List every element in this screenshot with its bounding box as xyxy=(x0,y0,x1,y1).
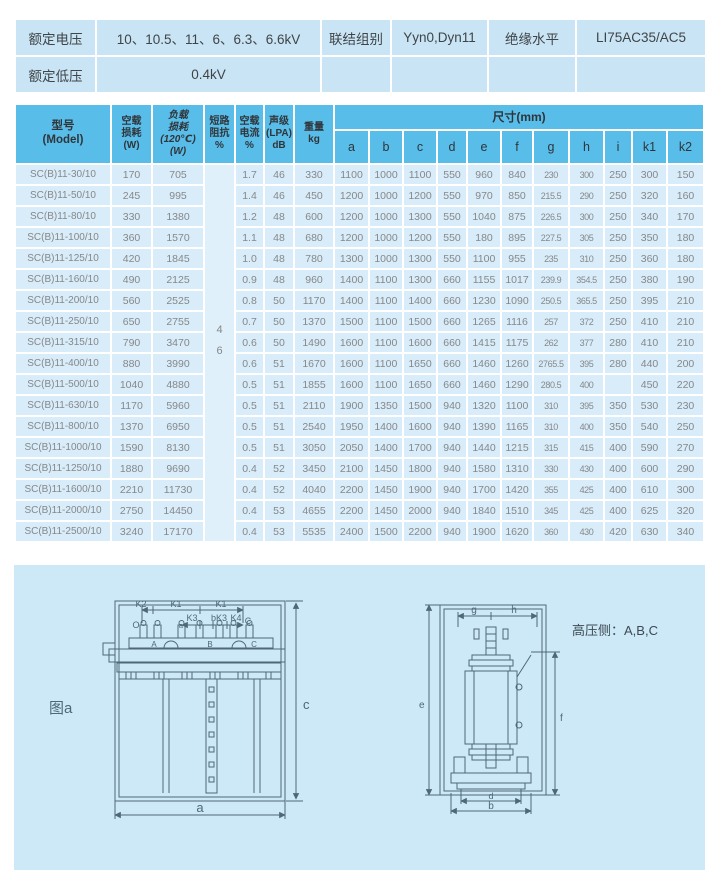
value-cell: 190 xyxy=(668,270,703,289)
value-cell: 400 xyxy=(605,501,631,520)
value-cell: 880 xyxy=(112,354,151,373)
value-cell: 790 xyxy=(112,333,151,352)
value-cell: 780 xyxy=(295,249,333,268)
value-cell: 1400 xyxy=(335,270,368,289)
ratings-bar: 额定电压 10、10.5、11、6、6.3、6.6kV 联结组别 Yyn0,Dy… xyxy=(14,18,707,94)
model-cell: SC(B)11-630/10 xyxy=(16,396,110,415)
value-cell: 51 xyxy=(265,375,293,394)
value-cell: 2200 xyxy=(404,522,436,541)
value-cell: 1650 xyxy=(404,354,436,373)
model-cell: SC(B)11-200/10 xyxy=(16,291,110,310)
empty-cell xyxy=(391,56,488,93)
value-cell: 415 xyxy=(570,438,603,457)
value-cell: 1100 xyxy=(370,270,402,289)
value-cell: 52 xyxy=(265,459,293,478)
value-cell: 290 xyxy=(668,459,703,478)
value-cell: 410 xyxy=(633,333,666,352)
value-cell: 280 xyxy=(605,333,631,352)
value-cell: 895 xyxy=(502,228,532,247)
value-cell: 48 xyxy=(265,207,293,226)
dim-label-f: f xyxy=(560,713,563,724)
value-cell: 350 xyxy=(633,228,666,247)
value-cell: 14450 xyxy=(153,501,203,520)
value-cell: 1600 xyxy=(335,375,368,394)
value-cell: 257 xyxy=(534,312,568,331)
value-cell: 850 xyxy=(502,186,532,205)
table-row: SC(B)11-160/1049021250.94896014001100130… xyxy=(16,270,703,289)
value-cell: 262 xyxy=(534,333,568,352)
value-cell: 227.5 xyxy=(534,228,568,247)
value-cell: 590 xyxy=(633,438,666,457)
value-cell: 1600 xyxy=(404,333,436,352)
value-cell: 1040 xyxy=(468,207,500,226)
value-cell: 250 xyxy=(668,417,703,436)
side-view-drawing: g h xyxy=(419,605,658,814)
value-cell: 1320 xyxy=(468,396,500,415)
empty-cell xyxy=(488,56,576,93)
value-cell: 355 xyxy=(534,480,568,499)
value-cell: 630 xyxy=(633,522,666,541)
value-cell: 2750 xyxy=(112,501,151,520)
value-cell: 3470 xyxy=(153,333,203,352)
value-cell: 250 xyxy=(605,207,631,226)
value-cell: 1165 xyxy=(502,417,532,436)
value-cell: 400 xyxy=(570,375,603,394)
ratings-row-2: 额定低压 0.4kV xyxy=(15,56,706,93)
value-cell: 1260 xyxy=(502,354,532,373)
value-cell: 11730 xyxy=(153,480,203,499)
terminal-label-a: A xyxy=(151,640,157,649)
value-cell: 51 xyxy=(265,438,293,457)
spec-table-body: SC(B)11-30/101707054 61.7463301100100011… xyxy=(16,165,703,541)
value-cell: 280.5 xyxy=(534,375,568,394)
value-cell: 1600 xyxy=(404,417,436,436)
table-row: SC(B)11-1000/10159081300.551305020501400… xyxy=(16,438,703,457)
model-cell: SC(B)11-315/10 xyxy=(16,333,110,352)
value-cell: 160 xyxy=(668,186,703,205)
value-cell: 320 xyxy=(633,186,666,205)
value-cell: 410 xyxy=(633,312,666,331)
value-cell: 360 xyxy=(534,522,568,541)
value-cell: 1300 xyxy=(404,207,436,226)
value-cell: 320 xyxy=(668,501,703,520)
dim-label-k2: K2 xyxy=(135,599,146,609)
value-cell: 0.4 xyxy=(236,501,263,520)
model-cell: SC(B)11-500/10 xyxy=(16,375,110,394)
value-cell: 940 xyxy=(438,417,466,436)
model-cell: SC(B)11-1600/10 xyxy=(16,480,110,499)
dim-label-k3: K3 xyxy=(186,613,197,623)
value-cell: 1600 xyxy=(335,333,368,352)
value-cell: 345 xyxy=(534,501,568,520)
value-cell: 1.7 xyxy=(236,165,263,184)
value-cell: 1415 xyxy=(468,333,500,352)
table-row: SC(B)11-125/1042018451.04878013001000130… xyxy=(16,249,703,268)
value-cell: 5535 xyxy=(295,522,333,541)
value-cell: 955 xyxy=(502,249,532,268)
value-cell: 550 xyxy=(438,249,466,268)
value-cell: 1017 xyxy=(502,270,532,289)
value-cell: 550 xyxy=(438,228,466,247)
value-cell: 1090 xyxy=(502,291,532,310)
value-cell: 600 xyxy=(295,207,333,226)
empty-cell xyxy=(576,56,706,93)
value-cell: 0.4 xyxy=(236,480,263,499)
value-cell: 940 xyxy=(438,480,466,499)
value-cell: 1500 xyxy=(335,312,368,331)
value-cell: 1855 xyxy=(295,375,333,394)
hv-side-note: 高压侧：A,B,C xyxy=(572,623,658,638)
value-cell: 250 xyxy=(605,249,631,268)
dim-letter-b: b xyxy=(370,131,402,163)
value-cell: 372 xyxy=(570,312,603,331)
dim-label-o: O xyxy=(132,620,139,630)
value-cell: 1370 xyxy=(295,312,333,331)
value-cell xyxy=(605,375,631,394)
value-cell: 1300 xyxy=(404,249,436,268)
value-cell: 1100 xyxy=(370,312,402,331)
value-cell: 1170 xyxy=(112,396,151,415)
dim-label-c: c xyxy=(303,697,310,712)
value-cell: 365.5 xyxy=(570,291,603,310)
dim-label-k1b: K1 xyxy=(215,599,226,609)
value-cell: 360 xyxy=(633,249,666,268)
dim-letter-k2: k2 xyxy=(668,131,703,163)
value-cell: 51 xyxy=(265,396,293,415)
table-row: SC(B)11-1250/10188096900.452345021001450… xyxy=(16,459,703,478)
insulation-level-label: 绝缘水平 xyxy=(488,19,576,56)
value-cell: 1440 xyxy=(468,438,500,457)
value-cell: 360 xyxy=(112,228,151,247)
value-cell: 1000 xyxy=(370,249,402,268)
value-cell: 995 xyxy=(153,186,203,205)
value-cell: 1450 xyxy=(370,501,402,520)
value-cell: 305 xyxy=(570,228,603,247)
value-cell: 540 xyxy=(633,417,666,436)
value-cell: 230 xyxy=(534,165,568,184)
value-cell: 180 xyxy=(668,249,703,268)
value-cell: 660 xyxy=(438,375,466,394)
value-cell: 2540 xyxy=(295,417,333,436)
dim-label-bk3: bK3 xyxy=(211,613,227,623)
value-cell: 1800 xyxy=(404,459,436,478)
value-cell: 1310 xyxy=(502,459,532,478)
value-cell: 2755 xyxy=(153,312,203,331)
value-cell: 530 xyxy=(633,396,666,415)
rated-voltage-label: 额定电压 xyxy=(15,19,96,56)
value-cell: 1700 xyxy=(468,480,500,499)
value-cell: 210 xyxy=(668,312,703,331)
value-cell: 3050 xyxy=(295,438,333,457)
value-cell: 960 xyxy=(295,270,333,289)
value-cell: 380 xyxy=(633,270,666,289)
value-cell: 200 xyxy=(668,354,703,373)
value-cell: 1400 xyxy=(370,417,402,436)
value-cell: 17170 xyxy=(153,522,203,541)
value-cell: 53 xyxy=(265,501,293,520)
value-cell: 300 xyxy=(570,207,603,226)
model-cell: SC(B)11-1000/10 xyxy=(16,438,110,457)
value-cell: 1200 xyxy=(335,186,368,205)
table-row: SC(B)11-50/102459951.4464501200100012005… xyxy=(16,186,703,205)
table-row: SC(B)11-2000/102750144500.45346552200145… xyxy=(16,501,703,520)
model-cell: SC(B)11-800/10 xyxy=(16,417,110,436)
value-cell: 51 xyxy=(265,354,293,373)
dimension-diagram: K2 K1 K1 O a K3 bK3 K4 C xyxy=(14,565,705,870)
value-cell: 250.5 xyxy=(534,291,568,310)
value-cell: 610 xyxy=(633,480,666,499)
value-cell: 940 xyxy=(438,459,466,478)
value-cell: 550 xyxy=(438,186,466,205)
model-cell: SC(B)11-400/10 xyxy=(16,354,110,373)
col-header-sound-level: 声级 (LPA) dB xyxy=(265,105,293,163)
value-cell: 940 xyxy=(438,522,466,541)
value-cell: 51 xyxy=(265,417,293,436)
spec-table: 型号 (Model) 空载 损耗 (W) 负载 损耗 (120℃) (W) 短路… xyxy=(14,103,705,543)
table-row: SC(B)11-800/10137069500.5512540195014001… xyxy=(16,417,703,436)
value-cell: 315 xyxy=(534,438,568,457)
value-cell: 1380 xyxy=(153,207,203,226)
value-cell: 50 xyxy=(265,312,293,331)
value-cell: 2100 xyxy=(335,459,368,478)
value-cell: 2110 xyxy=(295,396,333,415)
value-cell: 8130 xyxy=(153,438,203,457)
dim-label-h: h xyxy=(511,605,517,616)
model-cell: SC(B)11-160/10 xyxy=(16,270,110,289)
value-cell: 1100 xyxy=(370,333,402,352)
value-cell: 1200 xyxy=(404,186,436,205)
value-cell: 0.5 xyxy=(236,417,263,436)
value-cell: 970 xyxy=(468,186,500,205)
value-cell: 1700 xyxy=(404,438,436,457)
terminal-posts xyxy=(140,621,253,639)
terminal-label-b: B xyxy=(207,640,212,649)
col-header-no-load-current: 空载 电流 % xyxy=(236,105,263,163)
value-cell: 1200 xyxy=(404,228,436,247)
value-cell: 1900 xyxy=(335,396,368,415)
value-cell: 1500 xyxy=(404,396,436,415)
value-cell: 660 xyxy=(438,312,466,331)
value-cell: 1100 xyxy=(468,249,500,268)
value-cell: 330 xyxy=(534,459,568,478)
value-cell: 660 xyxy=(438,354,466,373)
model-cell: SC(B)11-250/10 xyxy=(16,312,110,331)
value-cell: 0.4 xyxy=(236,522,263,541)
value-cell: 1620 xyxy=(502,522,532,541)
insulation-level-value: LI75AC35/AC5 xyxy=(576,19,706,56)
value-cell: 1.1 xyxy=(236,228,263,247)
value-cell: 940 xyxy=(438,501,466,520)
value-cell: 4040 xyxy=(295,480,333,499)
value-cell: 1170 xyxy=(295,291,333,310)
value-cell: 395 xyxy=(633,291,666,310)
value-cell: 250 xyxy=(605,291,631,310)
value-cell: 48 xyxy=(265,228,293,247)
value-cell: 1000 xyxy=(370,207,402,226)
dim-letter-d: d xyxy=(438,131,466,163)
value-cell: 1590 xyxy=(112,438,151,457)
value-cell: 1350 xyxy=(370,396,402,415)
value-cell: 3990 xyxy=(153,354,203,373)
value-cell: 1100 xyxy=(370,354,402,373)
value-cell: 250 xyxy=(605,165,631,184)
value-cell: 400 xyxy=(605,459,631,478)
value-cell: 1400 xyxy=(404,291,436,310)
value-cell: 1500 xyxy=(404,312,436,331)
value-cell: 400 xyxy=(605,438,631,457)
dim-letter-k1: k1 xyxy=(633,131,666,163)
value-cell: 280 xyxy=(605,354,631,373)
dim-label-e: e xyxy=(419,700,425,711)
value-cell: 1215 xyxy=(502,438,532,457)
value-cell: 2125 xyxy=(153,270,203,289)
value-cell: 245 xyxy=(112,186,151,205)
value-cell: 9690 xyxy=(153,459,203,478)
value-cell: 430 xyxy=(570,459,603,478)
value-cell: 625 xyxy=(633,501,666,520)
value-cell: 1175 xyxy=(502,333,532,352)
value-cell: 210 xyxy=(668,333,703,352)
connection-group-label: 联结组别 xyxy=(321,19,391,56)
value-cell: 705 xyxy=(153,165,203,184)
value-cell: 220 xyxy=(668,375,703,394)
value-cell: 1390 xyxy=(468,417,500,436)
terminal-label-c: C xyxy=(251,640,257,649)
value-cell: 875 xyxy=(502,207,532,226)
value-cell: 1490 xyxy=(295,333,333,352)
value-cell: 1100 xyxy=(370,375,402,394)
spec-table-head: 型号 (Model) 空载 损耗 (W) 负载 损耗 (120℃) (W) 短路… xyxy=(16,105,703,163)
value-cell: 420 xyxy=(605,522,631,541)
dim-label-a: a xyxy=(196,800,204,815)
table-row: SC(B)11-400/1088039900.65116701600110016… xyxy=(16,354,703,373)
value-cell: 395 xyxy=(570,354,603,373)
value-cell: 210 xyxy=(668,291,703,310)
value-cell: 440 xyxy=(633,354,666,373)
value-cell: 420 xyxy=(112,249,151,268)
value-cell: 840 xyxy=(502,165,532,184)
value-cell: 0.5 xyxy=(236,438,263,457)
value-cell: 425 xyxy=(570,480,603,499)
value-cell: 1000 xyxy=(370,165,402,184)
value-cell: 2765.5 xyxy=(534,354,568,373)
value-cell: 300 xyxy=(668,480,703,499)
table-row: SC(B)11-2500/103240171700.45355352400150… xyxy=(16,522,703,541)
value-cell: 0.6 xyxy=(236,333,263,352)
value-cell: 400 xyxy=(605,480,631,499)
value-cell: 560 xyxy=(112,291,151,310)
value-cell: 600 xyxy=(633,459,666,478)
value-cell: 1040 xyxy=(112,375,151,394)
impedance-merged-cell: 4 6 xyxy=(205,165,234,541)
value-cell: 5960 xyxy=(153,396,203,415)
value-cell: 1265 xyxy=(468,312,500,331)
value-cell: 425 xyxy=(570,501,603,520)
value-cell: 350 xyxy=(605,396,631,415)
value-cell: 340 xyxy=(668,522,703,541)
value-cell: 1450 xyxy=(370,480,402,499)
value-cell: 1845 xyxy=(153,249,203,268)
value-cell: 2525 xyxy=(153,291,203,310)
value-cell: 0.5 xyxy=(236,375,263,394)
value-cell: 180 xyxy=(468,228,500,247)
value-cell: 1100 xyxy=(335,165,368,184)
value-cell: 1000 xyxy=(370,186,402,205)
col-header-load-loss: 负载 损耗 (120℃) (W) xyxy=(153,105,203,163)
dim-letter-c: c xyxy=(404,131,436,163)
rated-voltage-value: 10、10.5、11、6、6.3、6.6kV xyxy=(96,19,321,56)
value-cell: 250 xyxy=(605,312,631,331)
value-cell: 550 xyxy=(438,207,466,226)
value-cell: 310 xyxy=(534,396,568,415)
value-cell: 3450 xyxy=(295,459,333,478)
model-cell: SC(B)11-2000/10 xyxy=(16,501,110,520)
table-row: SC(B)11-1600/102210117300.45240402200145… xyxy=(16,480,703,499)
table-row: SC(B)11-100/1036015701.14868012001000120… xyxy=(16,228,703,247)
value-cell: 660 xyxy=(438,291,466,310)
value-cell: 1100 xyxy=(502,396,532,415)
value-cell: 1300 xyxy=(404,270,436,289)
value-cell: 1880 xyxy=(112,459,151,478)
model-cell: SC(B)11-50/10 xyxy=(16,186,110,205)
table-row: SC(B)11-630/10117059600.5512110190013501… xyxy=(16,396,703,415)
value-cell: 48 xyxy=(265,270,293,289)
value-cell: 395 xyxy=(570,396,603,415)
col-header-no-load-loss: 空载 损耗 (W) xyxy=(112,105,151,163)
value-cell: 1420 xyxy=(502,480,532,499)
value-cell: 1840 xyxy=(468,501,500,520)
value-cell: 235 xyxy=(534,249,568,268)
value-cell: 300 xyxy=(570,165,603,184)
value-cell: 6950 xyxy=(153,417,203,436)
value-cell: 354.5 xyxy=(570,270,603,289)
value-cell: 230 xyxy=(668,396,703,415)
value-cell: 226.5 xyxy=(534,207,568,226)
value-cell: 350 xyxy=(605,417,631,436)
value-cell: 450 xyxy=(633,375,666,394)
model-cell: SC(B)11-30/10 xyxy=(16,165,110,184)
value-cell: 1100 xyxy=(370,291,402,310)
dim-label-k1a: K1 xyxy=(170,599,181,609)
value-cell: 0.5 xyxy=(236,396,263,415)
model-cell: SC(B)11-100/10 xyxy=(16,228,110,247)
ratings-row-1: 额定电压 10、10.5、11、6、6.3、6.6kV 联结组别 Yyn0,Dy… xyxy=(15,19,706,56)
value-cell: 1290 xyxy=(502,375,532,394)
value-cell: 1500 xyxy=(370,522,402,541)
value-cell: 180 xyxy=(668,228,703,247)
value-cell: 310 xyxy=(570,249,603,268)
model-cell: SC(B)11-1250/10 xyxy=(16,459,110,478)
value-cell: 2050 xyxy=(335,438,368,457)
table-row: SC(B)11-250/1065027550.75013701500110015… xyxy=(16,312,703,331)
model-cell: SC(B)11-80/10 xyxy=(16,207,110,226)
value-cell: 1600 xyxy=(335,354,368,373)
front-view-drawing: K2 K1 K1 O a K3 bK3 K4 C xyxy=(49,599,310,819)
clamp-hatch xyxy=(126,672,271,679)
dim-letter-e: e xyxy=(468,131,500,163)
value-cell: 330 xyxy=(295,165,333,184)
value-cell: 1000 xyxy=(370,228,402,247)
value-cell: 170 xyxy=(668,207,703,226)
value-cell: 1900 xyxy=(468,522,500,541)
value-cell: 960 xyxy=(468,165,500,184)
value-cell: 0.8 xyxy=(236,291,263,310)
value-cell: 1200 xyxy=(335,228,368,247)
value-cell: 1300 xyxy=(335,249,368,268)
rated-lv-label: 额定低压 xyxy=(15,56,96,93)
dimension-diagram-panel: K2 K1 K1 O a K3 bK3 K4 C xyxy=(14,565,705,870)
value-cell: 310 xyxy=(534,417,568,436)
